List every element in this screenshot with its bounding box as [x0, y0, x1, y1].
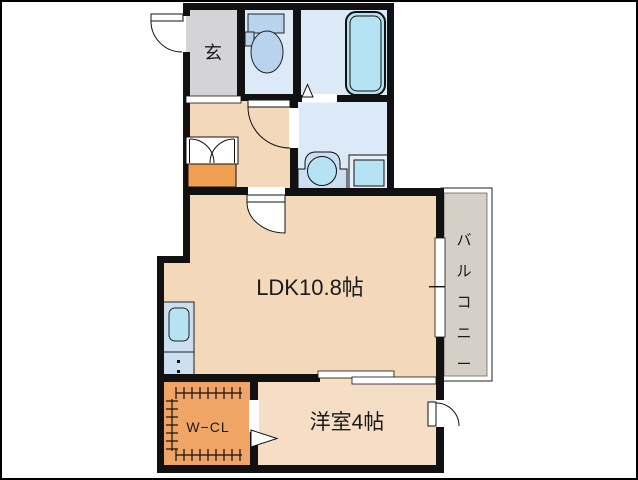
genkan-step [186, 96, 241, 103]
stove-knob-1 [177, 360, 180, 363]
washer-pan-inner [354, 160, 384, 186]
wall-top [183, 3, 394, 10]
balcony [441, 188, 492, 381]
toilet-bowl [251, 31, 283, 73]
western-room-label: 洋室4帖 [310, 411, 385, 434]
wall-ldk-top-left [183, 187, 248, 195]
wall-ldk-right-a [436, 188, 444, 238]
wall-left-lower [157, 256, 164, 473]
shoe-shelf [188, 164, 236, 187]
closet-double-door-icon [186, 137, 238, 164]
wall-ldk-right-b [436, 337, 444, 380]
washroom-doorway-opening [289, 108, 299, 148]
balcony-window-icon [435, 238, 445, 337]
wall-wcl-western-a [250, 374, 258, 400]
washroom-door-leaf [248, 100, 290, 107]
toilet-tank [248, 14, 284, 33]
wall-ldk-bottom [157, 374, 320, 382]
washbasin-bowl [308, 157, 337, 186]
balcony-label-char: ニ [456, 325, 471, 342]
balcony-label-char: バ [456, 232, 471, 249]
balcony-label-char: コ [456, 294, 471, 311]
wcl-doorway-opening [249, 400, 259, 432]
western-door-leaf [428, 402, 436, 426]
wall-ldk-top-right [285, 188, 438, 196]
wall-hall-washroom-a [290, 98, 298, 108]
ldk-label: LDK10.8帖 [256, 275, 364, 300]
floor-plan-canvas: 玄 LDK10.8帖 洋室4帖 W−CL バ ル コ ニ ー [0, 0, 638, 480]
wall-western-right-b [436, 427, 444, 473]
genkan-label: 玄 [204, 43, 222, 63]
bathtub-icon [346, 12, 385, 95]
sliding-door-panel-2 [352, 377, 436, 384]
balcony-window-mullion [429, 286, 445, 287]
stove-knob-2 [177, 370, 180, 373]
bathtub-outer [346, 12, 385, 95]
entrance-door-swing-icon [151, 21, 182, 52]
floor-plan-drawing: 玄 LDK10.8帖 洋室4帖 W−CL バ ル コ ニ ー [0, 0, 638, 480]
balcony-deck [444, 193, 487, 376]
wall-left-upper-a [183, 3, 190, 16]
balcony-label-char: ー [456, 356, 471, 373]
wall-genkan-toilet [237, 3, 245, 98]
wall-bath-bottom-b [337, 95, 394, 102]
wall-western-right-a [436, 374, 444, 400]
ldk-door-leaf [247, 195, 285, 202]
kitchen-sink-bowl [169, 308, 189, 341]
wall-bottom [157, 465, 444, 473]
wcl-label: W−CL [186, 419, 229, 435]
washing-machine-pan-icon [349, 155, 389, 190]
kitchen-sink-icon [163, 302, 194, 378]
wall-toilet-bath [293, 3, 301, 99]
balcony-label-char: ル [456, 263, 471, 280]
entrance-door-leaf [151, 14, 183, 21]
